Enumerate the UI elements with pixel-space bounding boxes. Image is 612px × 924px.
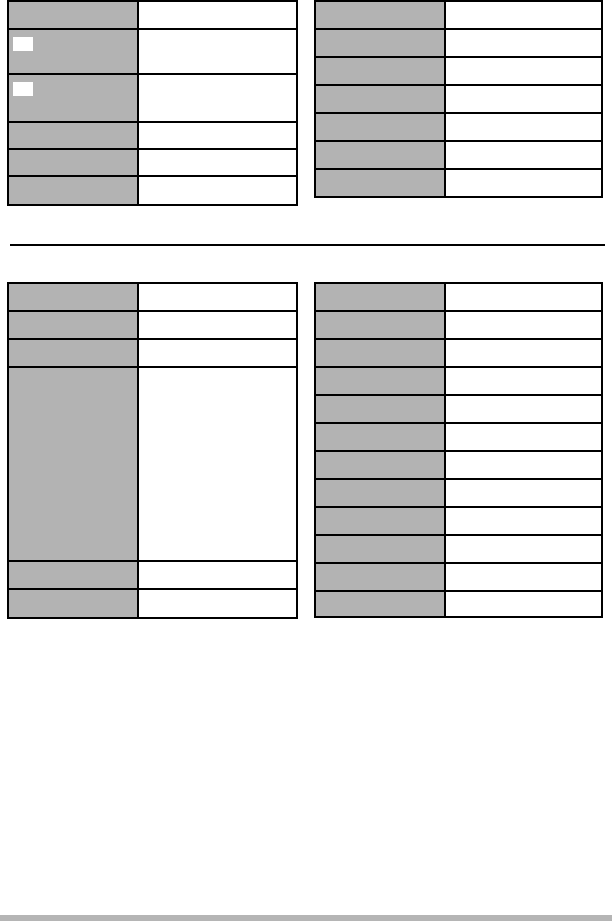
table-row <box>9 30 296 75</box>
row-header-cell <box>316 30 446 56</box>
table-row <box>9 75 296 123</box>
row-header-cell <box>316 564 446 590</box>
bottom-left-table <box>7 282 298 619</box>
row-value-cell <box>139 2 296 28</box>
row-value-cell <box>446 170 601 196</box>
table-row <box>316 424 601 452</box>
image-placeholder <box>13 37 33 51</box>
table-row <box>9 284 296 312</box>
row-header-cell <box>9 2 139 28</box>
row-value-cell <box>446 30 601 56</box>
row-value-cell <box>139 562 296 588</box>
row-value-cell <box>139 368 296 560</box>
image-placeholder <box>13 82 33 96</box>
row-header-cell <box>9 284 139 310</box>
table-row <box>316 480 601 508</box>
row-header-cell <box>9 368 139 560</box>
bottom-right-table <box>314 282 603 618</box>
row-header-cell <box>316 536 446 562</box>
row-value-cell <box>446 396 601 422</box>
row-header-cell <box>9 590 139 617</box>
row-value-cell <box>446 368 601 394</box>
row-value-cell <box>446 284 601 310</box>
row-header-cell <box>316 396 446 422</box>
top-right-table <box>314 0 603 198</box>
table-row <box>316 30 601 58</box>
row-value-cell <box>139 30 296 73</box>
row-header-cell <box>316 592 446 616</box>
table-row <box>316 396 601 424</box>
table-row <box>316 170 601 196</box>
row-header-cell <box>9 312 139 338</box>
table-row <box>316 340 601 368</box>
row-value-cell <box>446 592 601 616</box>
top-left-table <box>7 0 298 206</box>
table-row <box>316 142 601 170</box>
row-value-cell <box>139 75 296 121</box>
row-value-cell <box>446 508 601 534</box>
row-value-cell <box>446 86 601 112</box>
row-value-cell <box>139 177 296 204</box>
row-header-cell <box>316 58 446 84</box>
row-header-cell <box>316 2 446 28</box>
table-row <box>316 58 601 86</box>
table-row <box>316 564 601 592</box>
row-value-cell <box>446 424 601 450</box>
row-header-cell <box>316 508 446 534</box>
row-value-cell <box>446 536 601 562</box>
row-header-cell <box>9 75 139 121</box>
table-row <box>316 368 601 396</box>
row-value-cell <box>446 564 601 590</box>
row-header-cell <box>316 480 446 506</box>
row-header-cell <box>316 340 446 366</box>
row-value-cell <box>139 340 296 366</box>
table-row <box>316 114 601 142</box>
row-header-cell <box>9 562 139 588</box>
table-row <box>316 536 601 564</box>
row-value-cell <box>139 590 296 617</box>
row-value-cell <box>139 150 296 175</box>
document-page <box>0 0 612 924</box>
row-header-cell <box>9 30 139 73</box>
row-value-cell <box>139 284 296 310</box>
row-header-cell <box>9 340 139 366</box>
table-row <box>316 86 601 114</box>
row-value-cell <box>139 123 296 148</box>
row-value-cell <box>446 340 601 366</box>
row-value-cell <box>446 2 601 28</box>
table-row <box>9 123 296 150</box>
table-row <box>9 368 296 562</box>
table-row <box>9 340 296 368</box>
table-row <box>9 177 296 204</box>
page-footer-bar <box>0 915 612 921</box>
row-header-cell <box>316 368 446 394</box>
table-row <box>9 2 296 30</box>
table-row <box>316 284 601 312</box>
row-header-cell <box>9 150 139 175</box>
row-header-cell <box>316 114 446 140</box>
row-header-cell <box>316 142 446 168</box>
table-row <box>9 150 296 177</box>
row-value-cell <box>446 58 601 84</box>
table-row <box>9 312 296 340</box>
row-header-cell <box>316 86 446 112</box>
row-header-cell <box>316 452 446 478</box>
row-header-cell <box>316 312 446 338</box>
table-row <box>316 508 601 536</box>
row-value-cell <box>446 452 601 478</box>
table-row <box>9 562 296 590</box>
table-row <box>316 2 601 30</box>
row-header-cell <box>316 170 446 196</box>
row-value-cell <box>139 312 296 338</box>
row-value-cell <box>446 142 601 168</box>
section-divider-rule <box>10 244 605 246</box>
table-row <box>9 590 296 617</box>
row-header-cell <box>9 123 139 148</box>
table-row <box>316 312 601 340</box>
row-header-cell <box>316 284 446 310</box>
row-value-cell <box>446 480 601 506</box>
table-row <box>316 592 601 616</box>
row-header-cell <box>9 177 139 204</box>
row-value-cell <box>446 312 601 338</box>
table-row <box>316 452 601 480</box>
row-header-cell <box>316 424 446 450</box>
row-value-cell <box>446 114 601 140</box>
